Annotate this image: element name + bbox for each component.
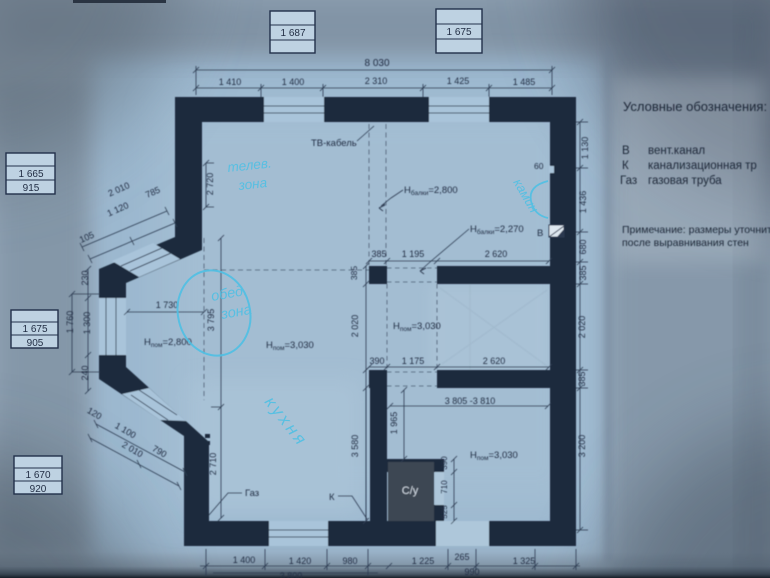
svg-text:230: 230 bbox=[80, 270, 90, 285]
svg-text:385: 385 bbox=[371, 249, 386, 259]
svg-text:2 020: 2 020 bbox=[350, 315, 360, 338]
svg-text:60: 60 bbox=[534, 161, 544, 171]
svg-text:вент.канал: вент.канал bbox=[648, 145, 705, 157]
svg-text:1 420: 1 420 bbox=[289, 556, 312, 566]
svg-text:1 730: 1 730 bbox=[156, 300, 179, 310]
svg-text:920: 920 bbox=[30, 484, 47, 495]
svg-text:после выравнивания стен: после выравнивания стен bbox=[622, 237, 749, 249]
svg-text:В: В bbox=[622, 145, 630, 157]
svg-text:К: К bbox=[622, 160, 629, 172]
svg-text:1 410: 1 410 bbox=[219, 77, 242, 87]
svg-text:газовая труба: газовая труба bbox=[648, 175, 722, 187]
svg-text:ТВ-кабель: ТВ-кабель bbox=[311, 138, 357, 149]
svg-text:525: 525 bbox=[440, 505, 449, 519]
svg-text:Газ: Газ bbox=[245, 488, 259, 499]
svg-text:915: 915 bbox=[23, 183, 40, 194]
svg-text:3 795: 3 795 bbox=[206, 309, 216, 332]
svg-text:1 687: 1 687 bbox=[280, 28, 305, 39]
svg-text:1 400: 1 400 bbox=[233, 555, 256, 565]
svg-text:1 485: 1 485 bbox=[513, 77, 536, 87]
svg-text:зона: зона bbox=[237, 175, 268, 193]
svg-text:240: 240 bbox=[80, 365, 90, 380]
svg-text:1 425: 1 425 bbox=[447, 76, 470, 86]
svg-text:390: 390 bbox=[440, 456, 449, 470]
svg-text:390: 390 bbox=[369, 356, 384, 366]
svg-text:1 675: 1 675 bbox=[446, 27, 471, 38]
svg-text:385: 385 bbox=[577, 371, 587, 386]
svg-text:680: 680 bbox=[578, 239, 588, 254]
svg-text:990: 990 bbox=[464, 567, 479, 577]
svg-text:265: 265 bbox=[454, 552, 469, 562]
svg-text:1 225: 1 225 bbox=[412, 556, 435, 566]
svg-text:710: 710 bbox=[440, 480, 449, 494]
svg-text:8 030: 8 030 bbox=[364, 58, 389, 69]
svg-text:2 710: 2 710 bbox=[208, 453, 218, 476]
svg-text:2 620: 2 620 bbox=[483, 356, 506, 366]
svg-text:С/у: С/у bbox=[402, 485, 419, 497]
svg-text:1 325: 1 325 bbox=[513, 556, 536, 566]
svg-text:1 436: 1 436 bbox=[578, 191, 588, 214]
svg-text:3 580: 3 580 bbox=[350, 435, 360, 458]
svg-text:канализационная тр: канализационная тр bbox=[648, 160, 757, 172]
svg-text:1 400: 1 400 bbox=[282, 77, 305, 87]
svg-text:385: 385 bbox=[578, 265, 588, 280]
svg-text:В: В bbox=[537, 228, 543, 239]
svg-text:905: 905 bbox=[27, 338, 44, 349]
svg-text:385: 385 bbox=[349, 266, 359, 280]
svg-text:1 965: 1 965 bbox=[389, 412, 399, 435]
svg-text:3 200: 3 200 bbox=[577, 435, 587, 458]
svg-text:Газ: Газ bbox=[620, 175, 637, 187]
svg-text:2 720: 2 720 bbox=[205, 173, 215, 196]
svg-text:1 130: 1 130 bbox=[580, 137, 590, 160]
svg-text:980: 980 bbox=[342, 556, 357, 566]
svg-text:2 310: 2 310 bbox=[365, 76, 388, 86]
svg-text:Условные обозначения:: Условные обозначения: bbox=[623, 99, 767, 114]
svg-text:1 195: 1 195 bbox=[402, 249, 425, 259]
svg-text:2 620: 2 620 bbox=[485, 249, 508, 259]
svg-text:Примечание: размеры уточнить: Примечание: размеры уточнить bbox=[622, 224, 770, 236]
svg-text:3 805 -3 810: 3 805 -3 810 bbox=[445, 396, 496, 406]
svg-text:К: К bbox=[329, 492, 335, 503]
svg-text:1 675: 1 675 bbox=[22, 324, 47, 335]
svg-text:1 665: 1 665 bbox=[18, 169, 43, 180]
svg-text:1 670: 1 670 bbox=[25, 470, 50, 481]
svg-text:1 300: 1 300 bbox=[82, 312, 92, 335]
svg-text:3 800: 3 800 bbox=[280, 571, 303, 578]
svg-text:1 760: 1 760 bbox=[65, 311, 75, 334]
svg-text:2 020: 2 020 bbox=[577, 316, 587, 339]
svg-text:1 175: 1 175 bbox=[402, 356, 425, 366]
